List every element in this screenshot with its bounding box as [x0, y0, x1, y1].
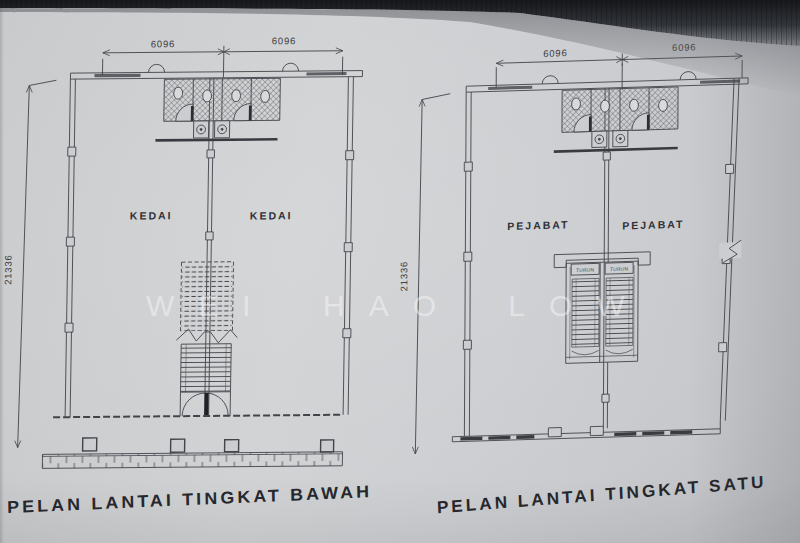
column [83, 438, 97, 451]
first-floor-drawing: PEJABAT PEJABAT TURUN TURUN [400, 39, 769, 518]
window [460, 437, 482, 441]
door-leaf [204, 393, 208, 415]
room-label-kedai-right: KEDAI [250, 209, 293, 221]
staircase-first: TURUN TURUN [554, 252, 651, 364]
room-label-kedai-left: KEDAI [130, 209, 173, 221]
column [321, 440, 334, 452]
column [171, 439, 185, 452]
side-dimension-left-plan [15, 80, 57, 447]
staircase-ground [175, 262, 238, 417]
room-label-pejabat-right: PEJABAT [622, 218, 684, 232]
window [670, 430, 692, 434]
dim-21336: 21336 [2, 254, 13, 285]
title-first-floor: PELAN LANTAI TINGKAT SATU [437, 472, 767, 517]
scanned-floorplan-page: KEDAI KEDAI [0, 0, 800, 543]
room-label-pejabat-left: PEJABAT [507, 218, 569, 232]
stair-label-turun-right: TURUN [610, 266, 629, 272]
shopfront-walkway [42, 415, 343, 469]
window [516, 435, 534, 439]
window [614, 432, 636, 436]
dim-21336: 21336 [400, 261, 409, 292]
title-ground-floor: PELAN LANTAI TINGKAT BAWAH [7, 482, 372, 517]
paved-edge [42, 452, 342, 469]
front-wall-windows [452, 421, 720, 442]
window [642, 431, 664, 435]
stair-landing [554, 252, 650, 268]
side-dimension-right-plan [412, 94, 450, 454]
scan-shadow-top [0, 0, 800, 110]
column [225, 440, 239, 452]
window [488, 436, 510, 440]
door-opening [548, 428, 561, 437]
door-opening [590, 426, 603, 435]
stair-label-turun-left: TURUN [576, 267, 595, 273]
